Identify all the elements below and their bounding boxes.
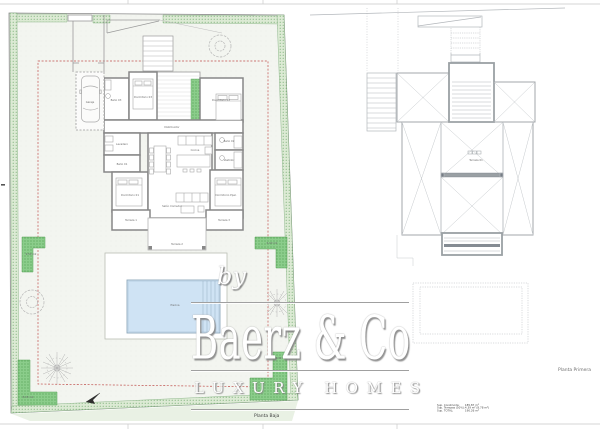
summary-value: 190.26 m² [465,410,479,413]
room-label: Garaje [86,100,95,104]
summary-label: Sup. TOTAL: [437,410,465,413]
pool-projection-dashed [413,283,528,343]
edge-mark [1,184,5,186]
room-label: Lavadero [116,142,128,146]
room-label: Baño 02 [224,139,235,143]
upper-landing [451,53,480,63]
room-label: Baño 01 [117,162,128,166]
bed-icon [116,178,142,206]
balcony [442,233,502,255]
surface-summary: Sup. Construida: 185.87 m² Sup. Terrazas… [437,404,489,413]
courtyard-deck [157,72,201,122]
room-label: Dormitorio 02 [212,98,230,102]
plan-title-baja: Planta Baja [254,414,279,419]
room-label: Piscina [171,303,180,307]
room-label: Dormitorio 01 [121,193,139,197]
bed-icon [216,94,241,120]
room-label: Terraza 3 [218,218,230,222]
plan-title-primera: Planta Primera [558,368,591,373]
garden-area-label: 8.05 m2 [23,395,34,399]
stairwell [449,63,494,122]
tree-icon [263,289,291,317]
room-label: Dormitorio Ppal. [216,193,237,197]
room-label: Dormitorio 03 [134,95,152,99]
roof-upper-left [397,73,449,122]
garden-area-label: 9.50 m2 [26,252,37,256]
upper-ramp [418,16,482,27]
roof-main [402,122,533,235]
room-label: Terraza 2 [171,242,183,246]
side-stair [367,73,396,131]
room-label: Distribuidor [164,125,180,129]
planta-primera-plan [310,8,565,343]
planta-baja-plan [1,13,298,421]
room-label: Terraza 01 [469,158,483,162]
entry-stairs [143,36,173,71]
room-label: Cocina [191,148,200,152]
terrace-beam [441,173,503,177]
dining-table-icon [150,146,171,174]
room-label: Salón Comedor [162,204,183,208]
summary-row: Sup. TOTAL: 190.26 m² [437,410,489,413]
lower-floor-reference [397,235,413,266]
pool-terrace [105,253,227,339]
room-label: Baño 03 [111,98,122,102]
pergola-dashed [451,27,480,53]
room-label: Terraza 1 [125,218,137,222]
room-label: Vestidor [224,158,235,162]
bed-icon [133,79,153,109]
roof-upper-right [494,82,535,122]
bed-icon [215,178,241,206]
garden-area-label: 8.00 m2 [276,356,287,360]
site-plan-drawing: Garaje Baño 03 Dormitorio 03 Dormitorio … [0,0,600,429]
garden-area-label: 6.00 m2 [267,241,278,245]
drawing-sheet: Garaje Baño 03 Dormitorio 03 Dormitorio … [0,0,600,429]
